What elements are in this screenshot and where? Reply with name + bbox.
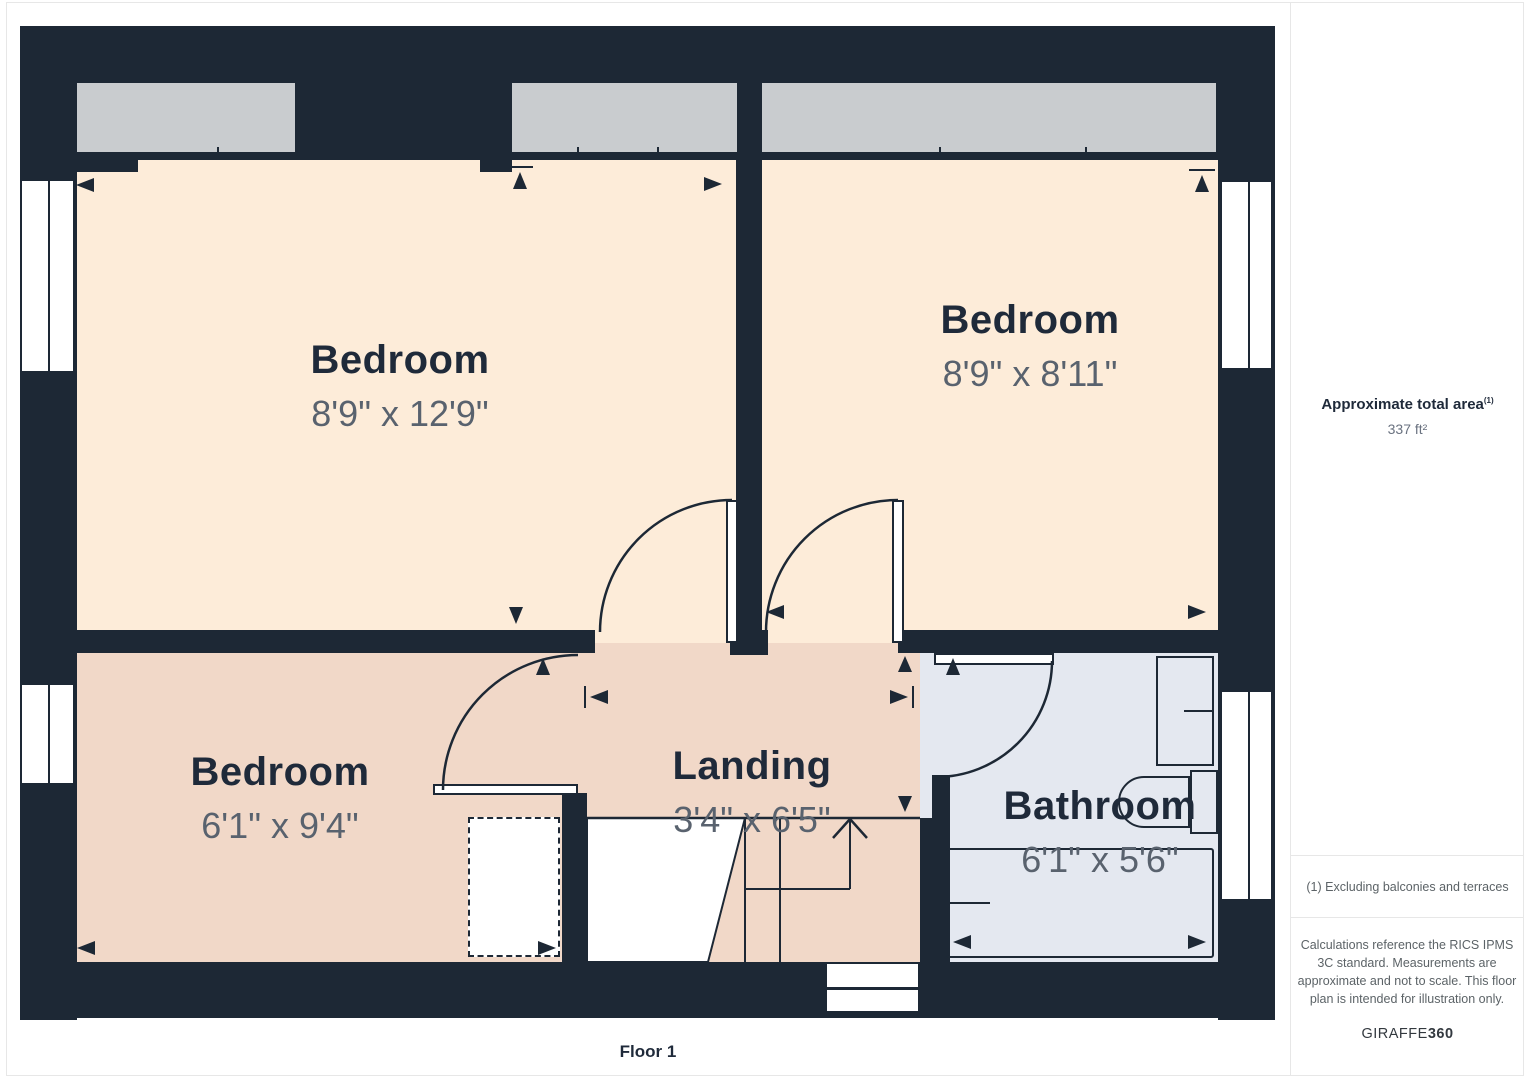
brand-logo: GIRAFFE360	[1291, 1026, 1524, 1042]
dormer-bay-middle	[512, 83, 737, 152]
door-opening-bedroom-1	[595, 630, 728, 643]
exterior-step-1	[825, 962, 920, 989]
sidebar-section-line-2	[1290, 917, 1524, 918]
disclaimer-block: Calculations reference the RICS IPMS 3C …	[1292, 936, 1522, 1009]
frame-right	[1523, 2, 1524, 1075]
exterior-step-2	[825, 988, 920, 1013]
wall-mid-left	[20, 630, 595, 653]
bed-outline-dashed	[468, 817, 560, 957]
wall-bottom	[20, 962, 1275, 1018]
room-name: Bedroom	[190, 750, 369, 794]
basin-detail-line	[1184, 710, 1212, 712]
window-bathroom-right	[1220, 690, 1273, 901]
floor-plan-page: Bedroom 8'9" x 12'9" Bedroom 8'9" x 8'11…	[0, 0, 1527, 1080]
frame-left	[6, 2, 7, 1075]
room-label-bathroom: Bathroom 6'1" x 5'6"	[1004, 784, 1197, 880]
total-area-title-text: Approximate total area	[1321, 396, 1484, 413]
brand-regular: GIRAFFE	[1361, 1026, 1427, 1042]
room-dimensions: 3'4" x 6'5"	[672, 800, 831, 840]
wall-jog-mid	[480, 160, 512, 172]
door-leaf-bedroom-1	[726, 500, 738, 643]
window-mullion	[1248, 182, 1250, 368]
sidebar-divider	[1290, 2, 1291, 1075]
door-leaf-bedroom-3	[433, 784, 578, 795]
door-leaf-bedroom-2	[892, 500, 904, 643]
room-dimensions: 8'9" x 12'9"	[310, 394, 489, 434]
room-dimensions: 6'1" x 5'6"	[1004, 840, 1197, 880]
door-opening-bedroom-2	[768, 630, 892, 643]
room-label-bedroom-1: Bedroom 8'9" x 12'9"	[310, 338, 489, 434]
door-leaf-bathroom	[934, 653, 1054, 665]
room-dimensions: 6'1" x 9'4"	[190, 806, 369, 846]
bathroom-basin-unit	[1156, 656, 1214, 766]
room-label-landing: Landing 3'4" x 6'5"	[672, 744, 831, 840]
brand-bold: 360	[1428, 1026, 1454, 1042]
floor-title: Floor 1	[620, 1042, 677, 1062]
wall-bathroom-left-upper	[932, 775, 950, 818]
room-label-bedroom-2: Bedroom 8'9" x 8'11"	[940, 298, 1119, 394]
room-name: Bedroom	[940, 298, 1119, 342]
frame-top	[6, 2, 1524, 3]
wall-jog-left	[77, 160, 138, 172]
sidebar-section-line-1	[1290, 855, 1524, 856]
window-bedroom-2-right	[1220, 180, 1273, 370]
room-name: Bedroom	[310, 338, 489, 382]
total-area-title: Approximate total area(1)	[1291, 396, 1524, 413]
window-bedroom-1-left	[20, 179, 75, 373]
frame-bottom	[6, 1075, 1524, 1076]
room-name: Bathroom	[1004, 784, 1197, 828]
window-mullion	[48, 685, 50, 783]
wall-bedroom-divider	[736, 160, 762, 630]
bathtub-tap-line	[948, 902, 990, 904]
total-area-note-ref: (1)	[1484, 396, 1494, 405]
wall-stairwell	[562, 793, 587, 962]
wall-mid-right	[898, 630, 1275, 653]
window-bedroom-3-left	[20, 683, 75, 785]
window-mullion	[48, 181, 50, 371]
room-name: Landing	[672, 744, 831, 788]
room-floor-bedroom-2	[762, 160, 1218, 630]
dormer-bay-left	[77, 83, 295, 152]
window-mullion	[1248, 692, 1250, 899]
dormer-bay-right	[762, 83, 1216, 152]
total-area-block: Approximate total area(1) 337 ft²	[1291, 396, 1524, 437]
room-dimensions: 8'9" x 8'11"	[940, 354, 1119, 394]
total-area-value: 337 ft²	[1291, 421, 1524, 437]
footnote-block: (1) Excluding balconies and terraces	[1291, 878, 1524, 896]
room-label-bedroom-3: Bedroom 6'1" x 9'4"	[190, 750, 369, 846]
